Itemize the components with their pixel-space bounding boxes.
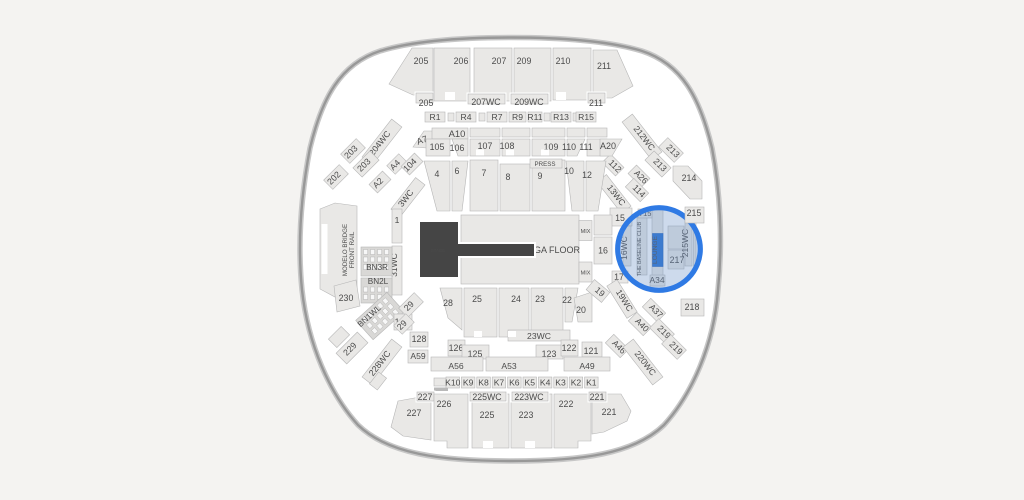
svg-text:206: 206 xyxy=(454,56,469,66)
svg-text:7: 7 xyxy=(482,168,487,178)
svg-text:207WC: 207WC xyxy=(471,97,501,107)
svg-text:K3: K3 xyxy=(555,378,566,388)
svg-text:121: 121 xyxy=(584,346,599,356)
svg-text:128: 128 xyxy=(412,334,427,344)
svg-text:24: 24 xyxy=(511,294,521,304)
svg-text:122: 122 xyxy=(562,343,577,353)
svg-text:210: 210 xyxy=(556,56,571,66)
svg-text:MIX: MIX xyxy=(581,229,591,235)
svg-text:A53: A53 xyxy=(501,361,517,371)
svg-text:K4: K4 xyxy=(540,378,551,388)
svg-text:222: 222 xyxy=(559,399,574,409)
svg-text:218: 218 xyxy=(685,302,700,312)
svg-text:R7: R7 xyxy=(492,112,503,122)
svg-text:GA FLOOR: GA FLOOR xyxy=(534,245,581,255)
svg-text:9: 9 xyxy=(538,171,543,181)
svg-text:110: 110 xyxy=(562,142,576,152)
svg-text:22: 22 xyxy=(562,295,572,305)
svg-text:R15: R15 xyxy=(578,112,594,122)
svg-text:225WC: 225WC xyxy=(472,392,502,402)
svg-text:R1: R1 xyxy=(430,112,441,122)
svg-text:8: 8 xyxy=(506,172,511,182)
svg-text:K8: K8 xyxy=(478,378,489,388)
svg-text:BN2L: BN2L xyxy=(368,277,389,286)
svg-text:23WC: 23WC xyxy=(527,331,551,341)
svg-text:25: 25 xyxy=(472,294,482,304)
svg-text:211: 211 xyxy=(597,61,611,71)
svg-text:K6: K6 xyxy=(509,378,520,388)
svg-text:209WC: 209WC xyxy=(514,97,544,107)
svg-text:A49: A49 xyxy=(579,361,595,371)
svg-text:221: 221 xyxy=(602,407,617,417)
svg-text:16: 16 xyxy=(598,246,608,256)
svg-text:230: 230 xyxy=(339,293,354,303)
svg-text:K1: K1 xyxy=(586,378,597,388)
svg-text:20: 20 xyxy=(576,305,586,315)
svg-text:FRONT RAIL: FRONT RAIL xyxy=(349,231,356,268)
svg-text:106: 106 xyxy=(450,143,465,153)
svg-text:209: 209 xyxy=(517,56,532,66)
svg-text:28: 28 xyxy=(443,298,453,308)
svg-text:227: 227 xyxy=(407,408,422,418)
svg-text:205: 205 xyxy=(414,56,429,66)
svg-text:226: 226 xyxy=(437,399,452,409)
svg-text:111: 111 xyxy=(579,142,592,152)
svg-text:207: 207 xyxy=(492,56,507,66)
svg-text:K7: K7 xyxy=(494,378,505,388)
svg-text:PRESS: PRESS xyxy=(535,161,556,168)
svg-text:R9: R9 xyxy=(512,112,523,122)
svg-text:221: 221 xyxy=(590,392,605,402)
svg-text:R11: R11 xyxy=(527,112,542,122)
svg-text:227: 227 xyxy=(418,392,433,402)
svg-text:215: 215 xyxy=(687,208,702,218)
svg-text:R4: R4 xyxy=(461,112,472,122)
svg-text:STAGE: STAGE xyxy=(431,248,445,253)
svg-text:223: 223 xyxy=(519,410,534,420)
svg-text:1: 1 xyxy=(395,215,400,225)
svg-text:A10: A10 xyxy=(449,128,466,139)
svg-text:214: 214 xyxy=(682,173,697,183)
svg-text:126: 126 xyxy=(449,343,464,353)
svg-text:MODELO BRIDGE: MODELO BRIDGE xyxy=(342,224,349,276)
svg-text:105: 105 xyxy=(430,142,445,152)
svg-text:211: 211 xyxy=(589,98,603,108)
svg-text:12: 12 xyxy=(582,170,592,180)
svg-text:K9: K9 xyxy=(463,378,474,388)
svg-text:6: 6 xyxy=(455,166,460,176)
svg-text:K10: K10 xyxy=(445,378,461,388)
svg-text:10: 10 xyxy=(564,166,574,176)
svg-text:225: 225 xyxy=(480,410,495,420)
svg-text:BN3R: BN3R xyxy=(366,263,388,272)
svg-text:MIX: MIX xyxy=(581,271,591,277)
svg-text:23: 23 xyxy=(535,294,545,304)
svg-text:A59: A59 xyxy=(410,351,426,361)
svg-text:K5: K5 xyxy=(524,378,535,388)
svg-text:223WC: 223WC xyxy=(514,392,544,402)
svg-text:A20: A20 xyxy=(600,141,616,151)
svg-text:205: 205 xyxy=(419,98,434,108)
svg-text:R13: R13 xyxy=(553,112,569,122)
svg-text:15: 15 xyxy=(615,213,625,223)
svg-text:4: 4 xyxy=(435,169,440,179)
svg-text:A56: A56 xyxy=(448,361,464,371)
svg-text:K2: K2 xyxy=(571,378,582,388)
